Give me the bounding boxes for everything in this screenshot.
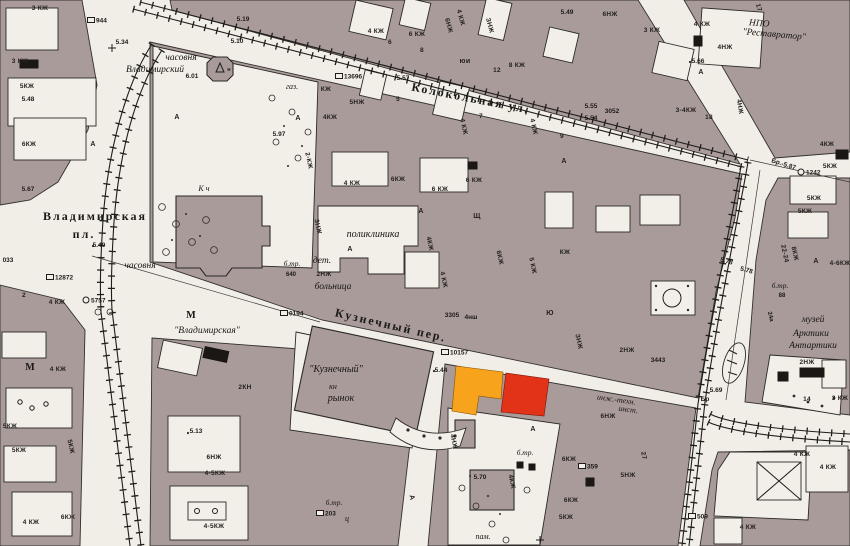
building-code-label: 8 [420,47,424,54]
rotunda-building [651,281,695,315]
place-label: ц [345,514,349,523]
building-code-label: 4-5КЖ [204,523,225,530]
building-code-label: А [174,114,179,121]
place-label: К ч [197,184,209,193]
place-label: б.тр. [326,498,343,507]
survey-marker [281,311,288,316]
building-code-label: 6КЖ [61,514,75,521]
elevation-label: 88 [779,293,786,299]
place-label: пам. [475,532,490,541]
building-code-label: 6КЖ [562,456,576,463]
building-code-label: 5 [396,96,400,103]
elevation-label: 3052 [605,108,620,115]
building-code-label: 5КЖ [12,447,26,454]
place-label: "Владимирская" [174,325,241,336]
building-code-label: 7 [479,113,483,120]
elevation-label: 5.67 [22,186,35,193]
place-label: дет. [313,255,331,266]
building-code-label: А [295,115,300,122]
building-code-label: 4-5КЖ [205,470,226,477]
building-code-label: 4 КЖ [694,21,710,28]
place-label: рынок [327,393,355,404]
survey-marker-number: 509 [697,514,708,521]
building-code-label: 4 КЖ [50,366,66,373]
building-code-label: 6 [388,39,392,46]
place-label: музей [801,314,825,325]
building-code-label: 5КЖ [798,208,812,215]
building-code-label: 6КЖ [391,176,405,183]
building-code-label: Щ [473,213,481,220]
building-code-label: А [561,158,566,165]
survey-marker [47,275,54,280]
building-code-label: 3 КЖ [32,5,48,12]
elevation-label: 640 [286,272,297,278]
place-label: Арктики [792,329,829,339]
building-code-label: 5НЖ [349,99,364,106]
place-label: М [186,310,196,321]
survey-marker [336,74,343,79]
survey-marker-number: 1242 [806,170,821,177]
survey-marker-number: 944 [96,18,107,25]
building-code-label: 6НЖ [206,454,221,461]
place-label: газ. [286,82,298,91]
building-code-label: 4 КЖ [820,464,836,471]
building-code-label: 4 КЖ [49,299,65,306]
street-name-label: Владимирская [43,209,147,223]
survey-marker-number: 203 [325,511,336,518]
place-label: больница [315,281,352,292]
building-code-label: 5КЖ [807,195,821,202]
building-code-label: 6НЖ [602,11,617,18]
building-code-label: 4-6КЖ [830,260,850,267]
elevation-label: 5.66 [692,58,705,65]
highlighted-building-red[interactable] [501,373,549,416]
place-label: часовня [124,261,155,271]
elevation-label: 5.69 [710,387,723,394]
building-code-label: 12 [493,67,501,74]
building-code-label: 5КЖ [559,514,573,521]
survey-marker-number: 13696 [344,74,362,81]
survey-marker [317,511,324,516]
place-label: б.тр. [284,259,301,268]
elevation-label: 5.44 [435,367,448,374]
building-code-label: 4 КЖ [23,519,39,526]
building-code-label: 3 КЖ [644,27,660,34]
elevation-label: 5.54 [585,115,598,122]
building-code-label: 2НЖ [619,347,634,354]
building-code-label: 14 [803,396,811,403]
place-label: б.тр. [772,281,789,290]
building-code-label: 2КН [238,384,251,391]
building-code-label: 6 КЖ [409,31,425,38]
building-code-label: 18 [705,114,713,121]
survey-marker [88,18,95,23]
survey-marker-number: 10157 [450,350,468,357]
building-code-label: Ю [546,310,554,317]
elevation-label: 5.55 [585,103,598,110]
building-code-label: А [698,69,703,76]
building-code-label: 4 КЖ [740,524,756,531]
place-label: б.тр. [517,448,534,457]
building-code-label: 5НЖ [620,472,635,479]
place-label: поликлиника [347,229,400,240]
building-code-label: 6КЖ [564,497,578,504]
building-code-label: 3-4КЖ [676,107,697,114]
survey-marker [579,464,586,469]
polyclinic-building [318,206,418,274]
building-code-label: 8 КЖ [509,62,525,69]
place-label: часовня [165,53,196,63]
building-code-label: КЖ [321,86,331,93]
survey-marker [798,169,804,175]
elevation-label: 5.97 [273,131,286,138]
building-code-label: н [227,67,231,73]
elevation-label: 4нш [465,314,478,321]
survey-marker-number: 359 [587,464,598,471]
elevation-label: 5.57 [397,75,410,82]
building-code-label: 2НЖ [316,271,331,278]
building-code-label: 5КЖ [823,163,837,170]
building-code-label: 4НЖ [717,44,732,51]
elevation-label: 3305 [445,312,460,319]
building-code-label: 4 КЖ [794,451,810,458]
place-label: "Кузнечный" [309,364,363,375]
x-pattern-building [757,462,801,500]
building-code-label: юи [460,58,471,65]
building-code-label: А [418,208,423,215]
elevation-label: 5.40 [93,242,106,249]
elevation-label: 5.10 [231,38,244,45]
elevation-label: Бр [701,396,710,403]
elevation-label: 5.13 [190,428,203,435]
survey-marker [83,297,89,303]
elevation-label: 5.49 [561,9,574,16]
elevation-label: 5.70 [474,474,487,481]
city-plan-map: Колокольная ул.Кузнечный пер.Владимирска… [0,0,850,546]
elevation-label: 5.19 [237,16,250,23]
survey-marker [689,514,696,519]
place-label: кн [329,382,337,391]
building-code-label: 9 [560,133,564,140]
survey-marker-number: 5757 [91,298,106,305]
building-code-label: 3 КЖ [12,58,28,65]
vladimirsky-cathedral [176,196,270,276]
building-code-label: 4КЖ [323,114,337,121]
building-code-label: А [90,141,95,148]
building-code-label: 5КЖ [3,423,17,430]
building-code-label: 4 КЖ [368,28,384,35]
place-label: Владимирский [126,64,184,75]
street-name-label: пл. [73,227,96,241]
survey-marker [442,350,449,355]
elevation-label: 5.34 [116,39,129,46]
building-code-label: 6НЖ [600,413,615,420]
building-code-label: 3 КЖ [832,395,848,402]
building-code-label: 6КЖ [22,141,36,148]
place-label: М [25,362,35,373]
elevation-label: 5.48 [22,96,35,103]
building-code-label: 2 [22,292,26,299]
elevation-label: 6.01 [186,73,199,80]
elevation-label: 033 [3,257,14,264]
elevation-label: 3443 [651,357,666,364]
building-code-label: А [530,426,535,433]
place-label: Антартики [788,341,837,351]
survey-marker-number: 0194 [289,311,304,318]
building-code-label: 2НЖ [799,359,814,366]
building-code-label: 6 КЖ [466,177,482,184]
building-code-label: КЖ [560,249,570,256]
building-code-label: А [813,258,818,265]
building-code-label: 5КЖ [20,83,34,90]
building-code-label: А [347,246,352,253]
building-code-label: 4КЖ [820,141,834,148]
building-code-label: 4 КЖ [344,180,360,187]
building-code-label: 6 КЖ [432,186,448,193]
survey-marker-number: 12872 [55,275,73,282]
